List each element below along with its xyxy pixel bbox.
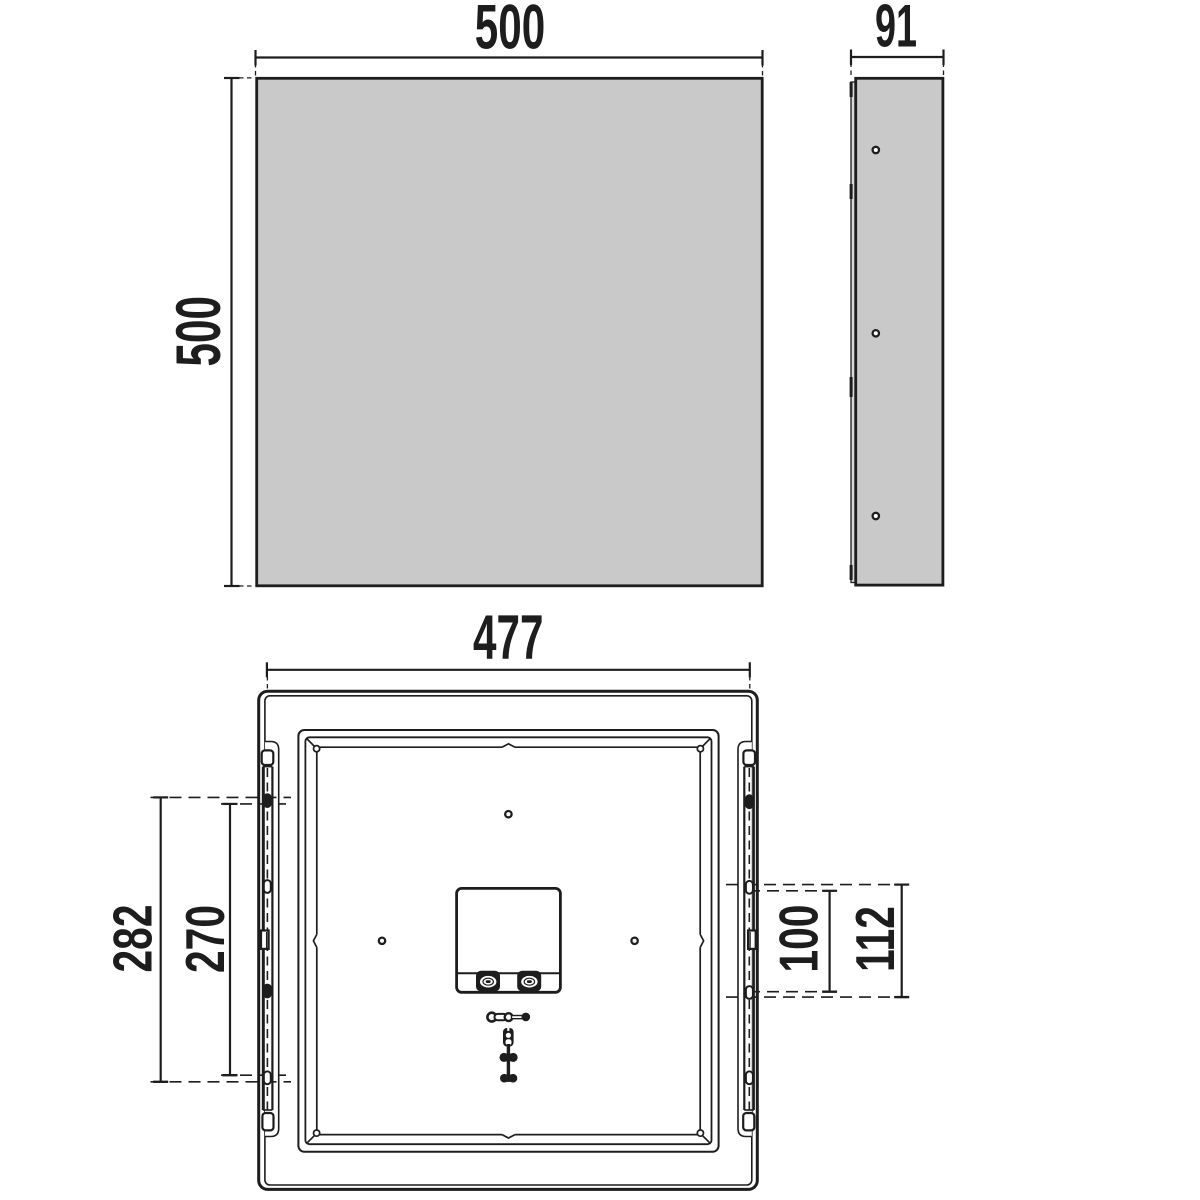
svg-text:100: 100 [769, 905, 830, 973]
svg-text:477: 477 [473, 603, 543, 673]
svg-text:270: 270 [175, 905, 236, 973]
svg-text:500: 500 [164, 296, 234, 366]
svg-text:91: 91 [875, 0, 917, 60]
svg-text:282: 282 [103, 905, 164, 973]
svg-text:500: 500 [475, 0, 545, 62]
svg-text:112: 112 [845, 906, 906, 972]
